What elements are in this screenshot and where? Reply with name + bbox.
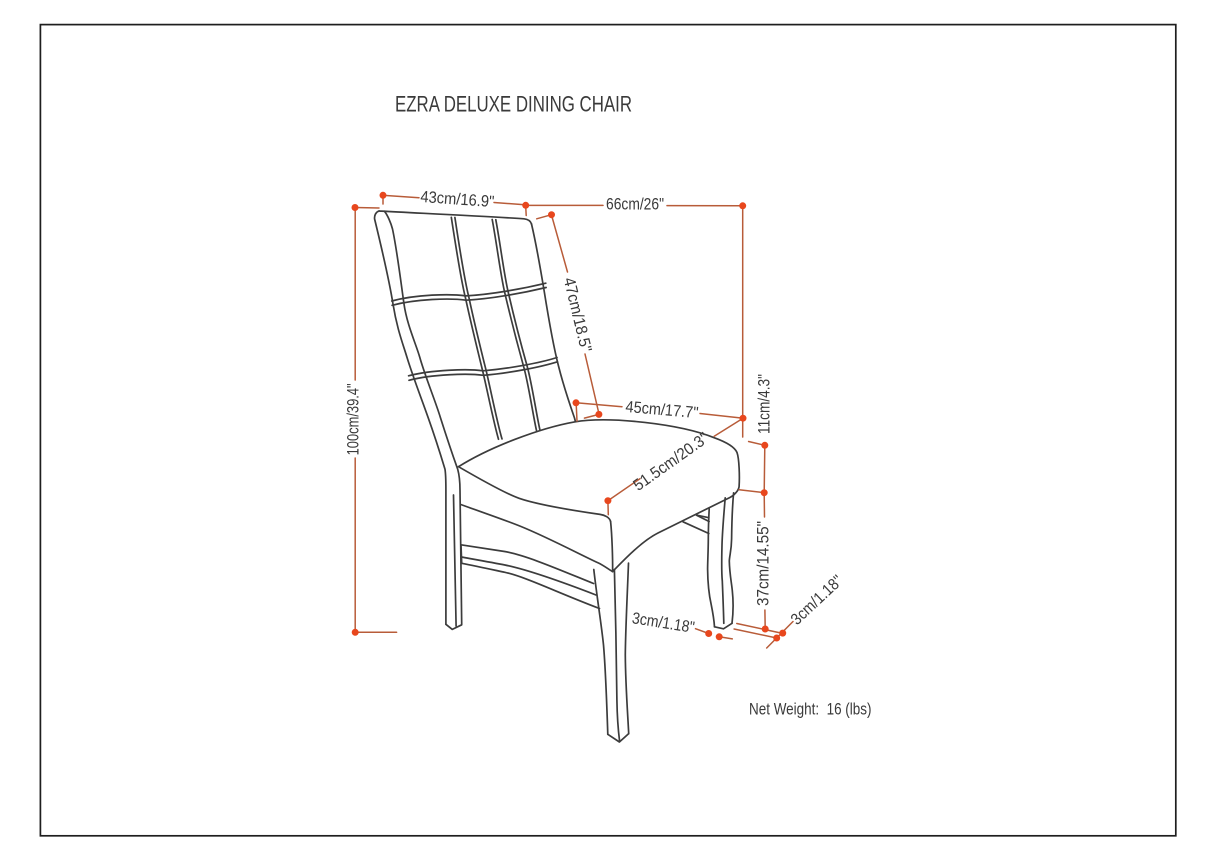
svg-text:100cm/39.4": 100cm/39.4" — [345, 383, 363, 455]
svg-text:37cm/14.55": 37cm/14.55" — [755, 521, 773, 606]
svg-text:Net Weight: 16 (lbs): Net Weight: 16 (lbs) — [749, 700, 872, 719]
svg-text:EZRA DELUXE DINING CHAIR: EZRA DELUXE DINING CHAIR — [395, 92, 632, 117]
svg-text:11cm/4.3": 11cm/4.3" — [756, 374, 774, 434]
svg-text:66cm/26": 66cm/26" — [606, 196, 664, 214]
